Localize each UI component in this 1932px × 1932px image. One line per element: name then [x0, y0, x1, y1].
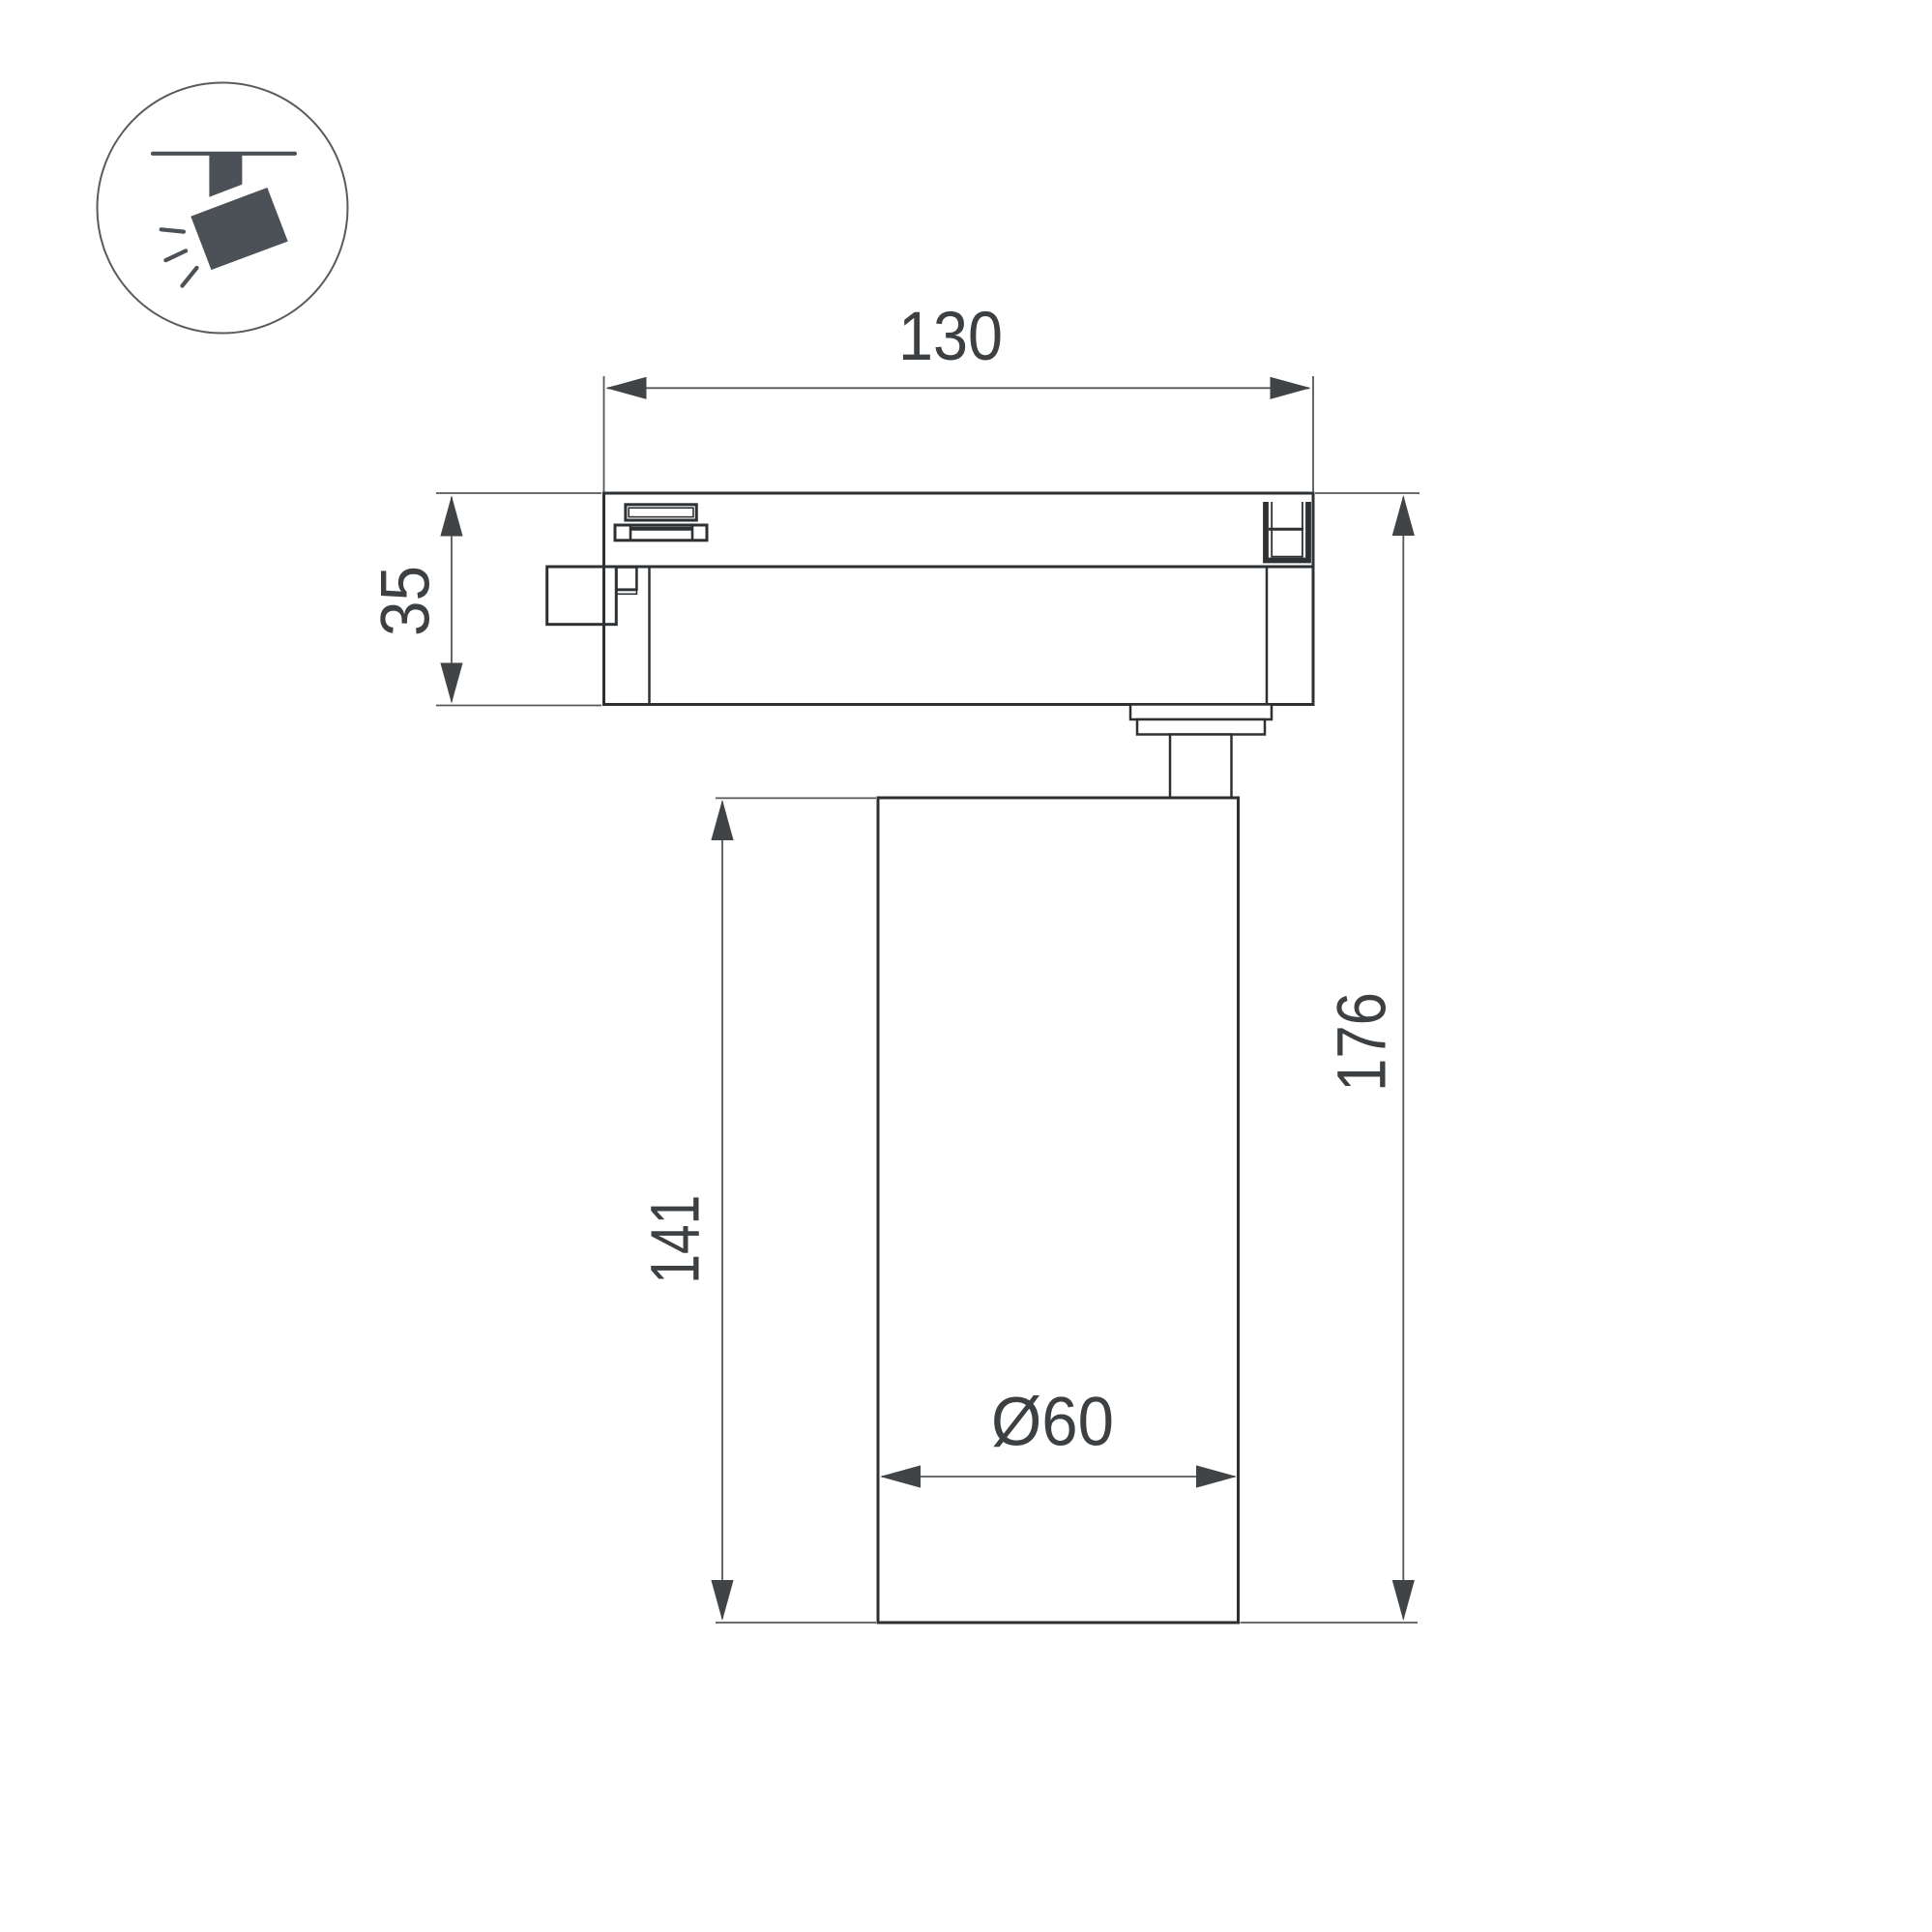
svg-text:35: 35 [367, 566, 444, 636]
svg-text:130: 130 [898, 299, 1003, 375]
svg-text:176: 176 [1325, 992, 1401, 1092]
svg-text:Ø60: Ø60 [991, 1385, 1114, 1461]
svg-text:141: 141 [638, 1195, 715, 1284]
